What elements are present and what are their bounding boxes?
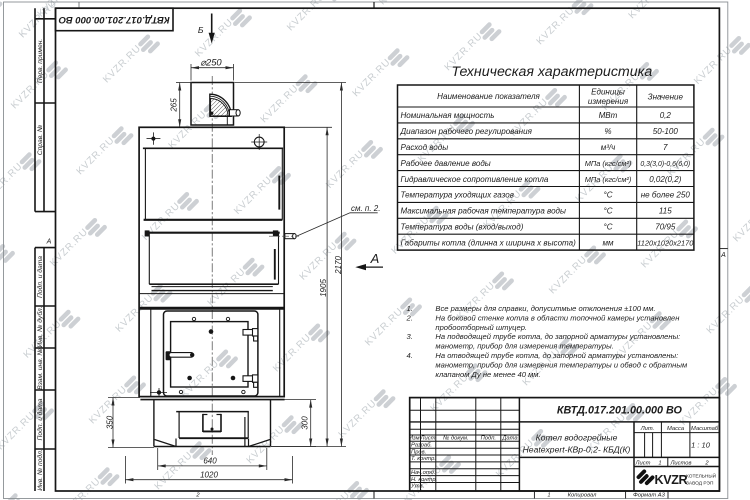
svg-text:Котел водогрейные: Котел водогрейные [536,433,618,443]
svg-text:°С: °С [603,223,612,232]
svg-text:4.: 4. [407,351,413,360]
svg-text:пробоотборный штуцер.: пробоотборный штуцер. [435,323,527,332]
svg-text:7: 7 [663,143,668,152]
svg-text:Инв. № подл.: Инв. № подл. [36,449,44,491]
svg-text:Значение: Значение [648,93,684,102]
svg-text:Пров.: Пров. [411,449,426,455]
svg-text:KVZR: KVZR [655,473,688,487]
svg-text:300: 300 [301,416,310,430]
svg-text:Лист: Лист [420,436,436,442]
svg-text:50-100: 50-100 [653,127,679,136]
svg-text:Разраб.: Разраб. [411,443,432,449]
svg-text:Листов: Листов [669,460,691,466]
svg-text:клапаном Ду не менее 40 мм.: клапаном Ду не менее 40 мм. [435,370,540,379]
svg-text:Лит.: Лит. [640,426,655,432]
svg-text:Б: Б [198,25,204,35]
svg-text:0,3(3,0)-0,6(6,0): 0,3(3,0)-0,6(6,0) [640,161,690,168]
svg-text:Наименование показателя: Наименование показателя [437,92,540,101]
svg-text:0,2: 0,2 [660,111,672,120]
svg-text:1120х1020х2170: 1120х1020х2170 [637,238,694,247]
svg-text:1905: 1905 [319,279,328,297]
svg-text:м³/ч: м³/ч [601,143,616,152]
svg-text:не более 250: не более 250 [641,191,691,200]
svg-text:Температура воды (вход/выход): Температура воды (вход/выход) [401,223,524,232]
svg-text:%: % [604,127,611,136]
svg-text:Техническая характеристика: Техническая характеристика [451,64,652,80]
svg-text:Нач.отд.: Нач.отд. [411,470,435,476]
svg-text:На отводящей трубе котла, до з: На отводящей трубе котла, до запорной ар… [435,351,678,360]
svg-text:ЗАВОД РЭП: ЗАВОД РЭП [686,481,714,487]
svg-text:°С: °С [603,191,612,200]
svg-text:Все размеры для справки, допус: Все размеры для справки, допуситмые откл… [435,304,655,313]
svg-text:Т. контр.: Т. контр. [411,456,436,462]
svg-text:Взам. инв. №: Взам. инв. № [37,348,44,389]
svg-text:МПа (кгс/см²): МПа (кгс/см²) [585,175,632,184]
svg-text:На боковой стенке котла в обла: На боковой стенке котла в области топочн… [435,313,680,322]
svg-text:Подп.: Подп. [481,436,496,442]
svg-text:Копировал: Копировал [568,492,598,498]
svg-text:Температура уходящих газов: Температура уходящих газов [401,191,514,200]
svg-text:Гидравлическое сопротивление к: Гидравлическое сопротивление котла [401,175,549,184]
svg-text:1 : 10: 1 : 10 [691,441,711,450]
svg-text:№ докум.: № докум. [443,436,469,442]
svg-text:Диапазон рабочего регулировани: Диапазон рабочего регулирования [400,127,533,136]
svg-text:Номинальная мощность: Номинальная мощность [401,111,495,120]
svg-text:3.: 3. [407,332,413,341]
svg-text:°С: °С [603,207,612,216]
svg-text:115: 115 [659,207,672,216]
svg-text:МВт: МВт [599,111,618,120]
svg-text:манометр, прибор для измерения: манометр, прибор для измерения температу… [435,360,688,369]
svg-text:Единицы: Единицы [591,88,625,97]
svg-text:0,02(0,2): 0,02(0,2) [649,175,682,184]
svg-text:Инв. № дубл.: Инв. № дубл. [36,306,44,347]
svg-text:70/95: 70/95 [655,223,676,232]
svg-text:Справ. №: Справ. № [37,125,44,155]
svg-text:Лист: Лист [635,460,651,466]
svg-text:А: А [46,239,52,246]
svg-text:На подводящей трубе котла, до: На подводящей трубе котла, до запорной а… [435,332,680,341]
svg-text:1.: 1. [407,304,413,313]
svg-text:Расход воды: Расход воды [401,143,449,152]
svg-text:1020: 1020 [200,471,218,480]
svg-text:265: 265 [170,98,179,113]
svg-text:640: 640 [203,457,217,466]
svg-text:350: 350 [106,415,115,429]
svg-text:КВТД.017.201.00.000 ВО: КВТД.017.201.00.000 ВО [557,405,683,417]
svg-text:2.: 2. [406,313,413,322]
svg-text:Габариты котла (длинна х ширин: Габариты котла (длинна х ширина х высота… [401,238,577,247]
svg-text:Heatexpert-КВр-0,2- КБД(К): Heatexpert-КВр-0,2- КБД(К) [523,445,631,455]
svg-text:Н. контр.: Н. контр. [411,477,437,483]
svg-text:Формат А3: Формат А3 [633,492,665,498]
svg-text:А: А [370,251,380,266]
svg-text:Изм.: Изм. [409,436,421,442]
svg-text:Максимальная рабочая температу: Максимальная рабочая температура воды [401,207,566,216]
svg-text:Утв.: Утв. [410,484,424,490]
svg-text:мм: мм [602,238,614,247]
svg-text:Подп. и дата: Подп. и дата [36,256,44,298]
svg-text:МПа (кгс/см²): МПа (кгс/см²) [585,159,632,168]
svg-text:КВТД.017.201.00.000 ВО: КВТД.017.201.00.000 ВО [58,14,170,25]
svg-text:Перв. примен.: Перв. примен. [37,39,44,84]
svg-text:1: 1 [658,460,661,466]
svg-text:Масса: Масса [667,426,685,432]
svg-text:⌀250: ⌀250 [200,56,222,67]
svg-text:см. п. 2.: см. п. 2. [351,204,380,213]
svg-text:манометр, прибор для измерения: манометр, прибор для измерения температу… [435,342,613,351]
svg-text:1: 1 [547,493,550,499]
svg-text:Масштаб: Масштаб [691,426,719,432]
svg-text:измерения: измерения [588,97,629,106]
svg-text:Рабочее давление воды: Рабочее давление воды [401,159,491,168]
svg-text:Дата: Дата [501,436,518,442]
svg-text:Подп. и дата: Подп. и дата [36,398,44,440]
svg-text:2170: 2170 [334,256,343,275]
svg-text:А: А [720,252,726,259]
